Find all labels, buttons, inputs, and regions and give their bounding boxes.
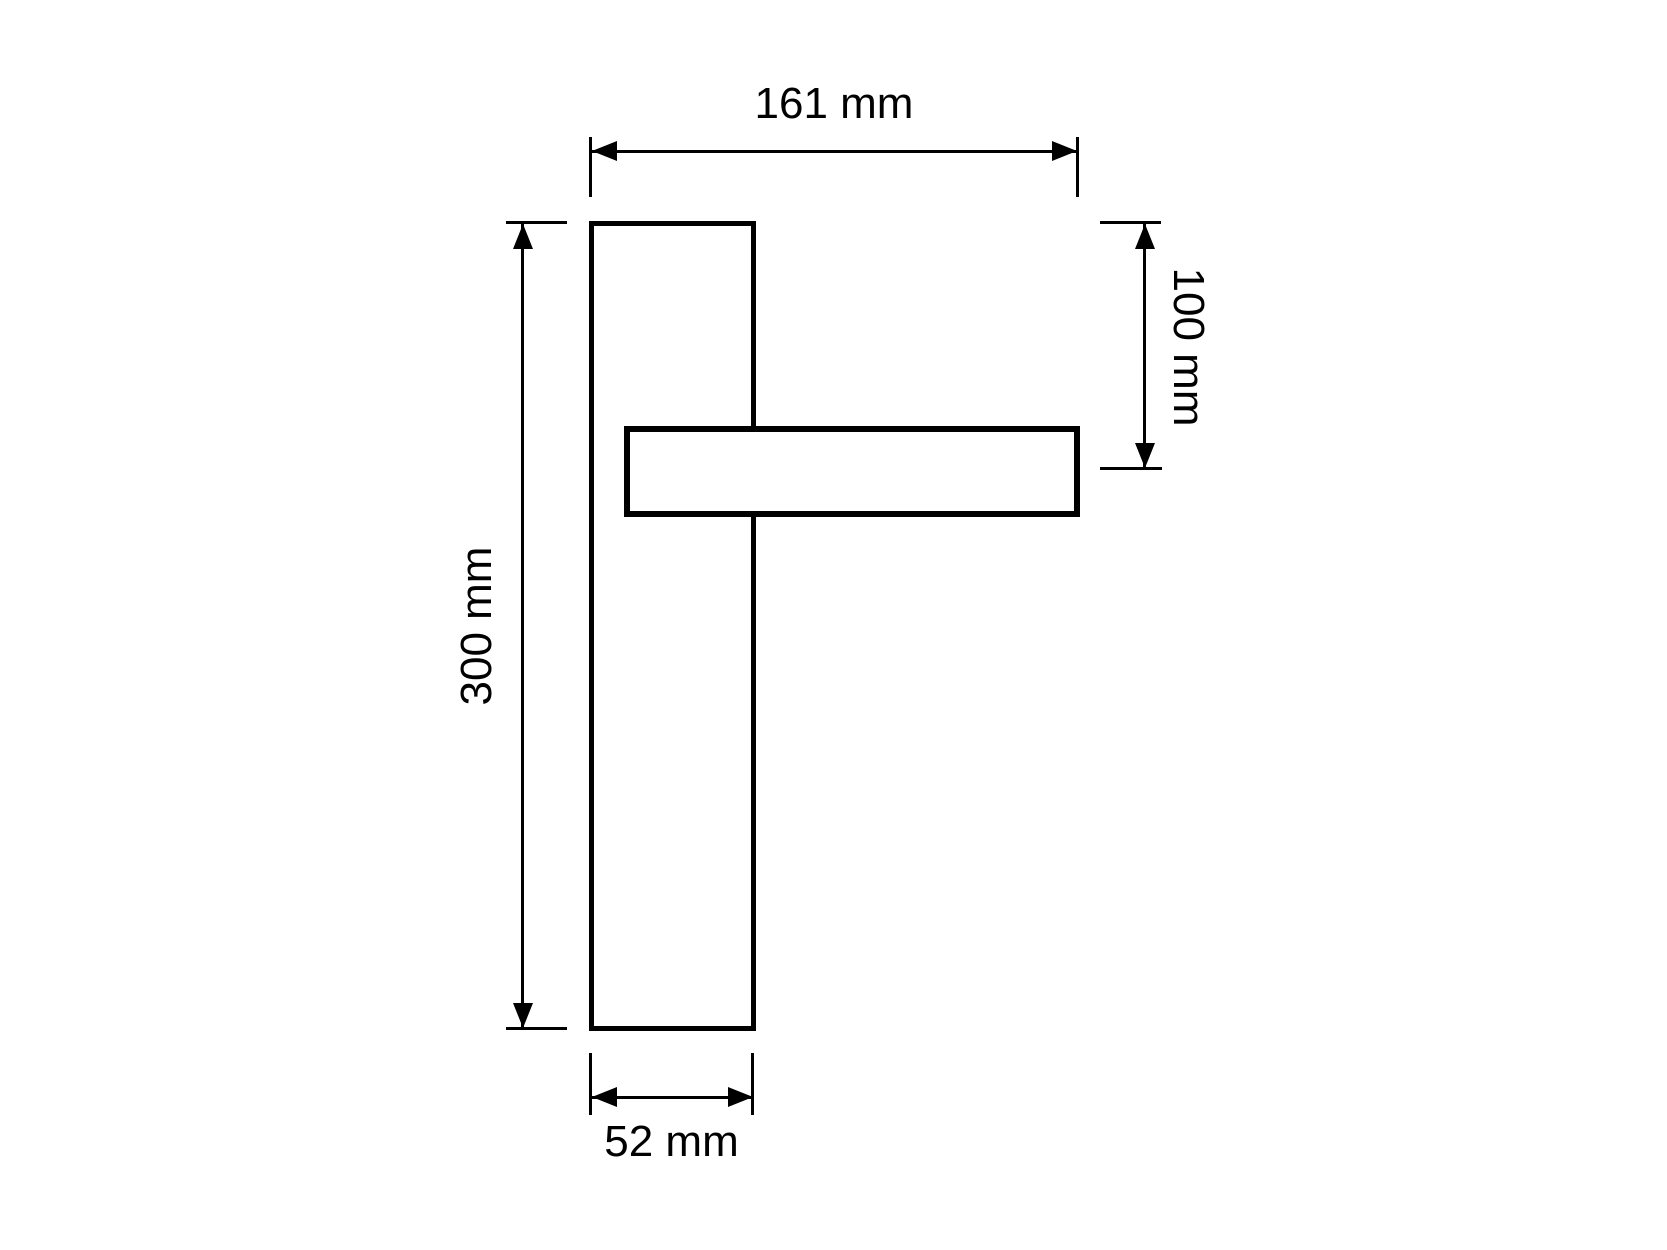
arrowhead-down-icon — [513, 1003, 533, 1028]
arrowhead-right-icon — [728, 1087, 753, 1107]
arrowhead-left-icon — [592, 1087, 617, 1107]
dim-total-width-line — [591, 150, 1077, 153]
dim-plate-height-line — [521, 224, 524, 1028]
dim-plate-height-label: 300 mm — [453, 547, 501, 706]
lever-handle-outline — [624, 426, 1080, 517]
arrowhead-up-icon — [513, 224, 533, 249]
backplate-outline — [589, 221, 756, 1031]
dim-handle-offset-label: 100 mm — [1164, 268, 1212, 427]
arrowhead-down-icon — [1135, 443, 1155, 468]
dim-total-width-label: 161 mm — [591, 80, 1077, 128]
arrowhead-up-icon — [1135, 224, 1155, 249]
arrowhead-right-icon — [1052, 141, 1077, 161]
dim-plate-width-label: 52 mm — [589, 1118, 754, 1166]
technical-drawing-canvas: 161 mm 100 mm 300 mm 52 mm — [0, 0, 1667, 1250]
dim-handle-offset-line — [1143, 224, 1146, 468]
arrowhead-left-icon — [592, 141, 617, 161]
